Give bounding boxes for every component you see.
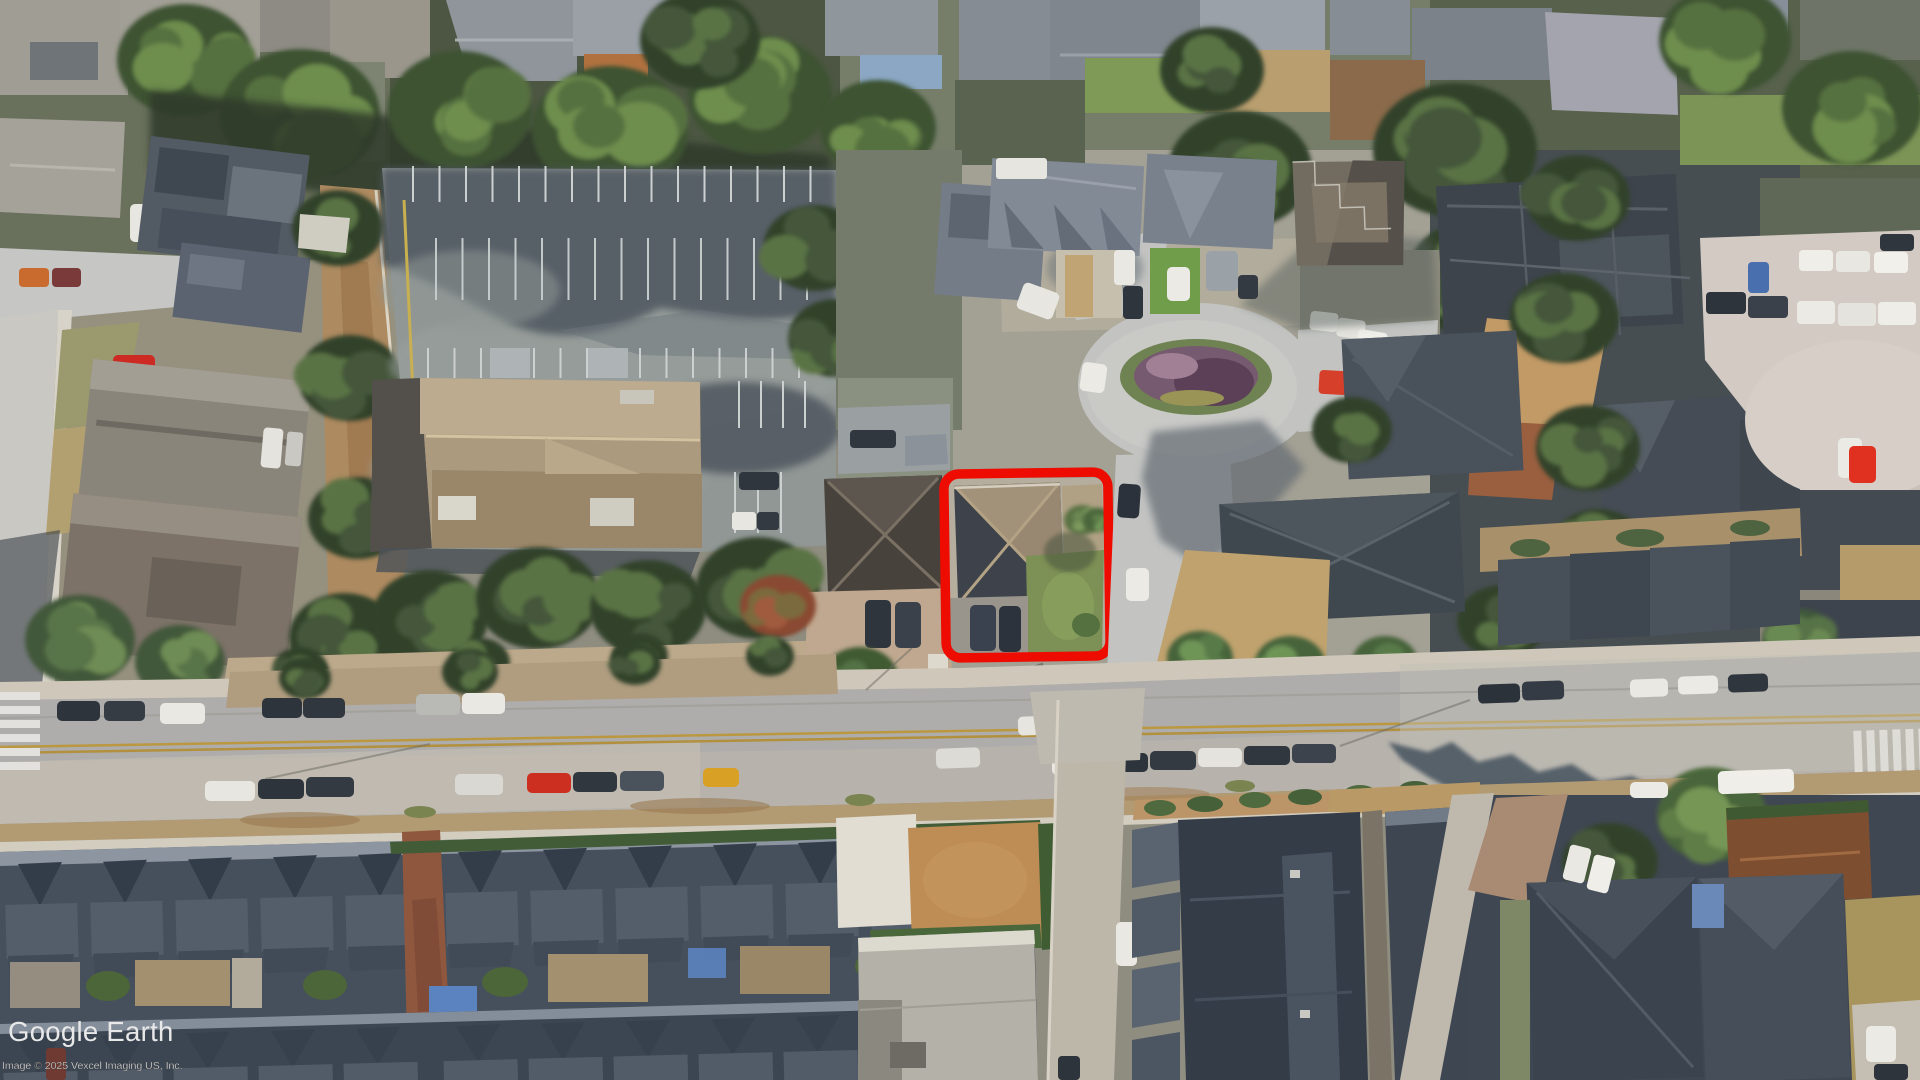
- svg-text:Image © 2025 Vexcel Imaging US: Image © 2025 Vexcel Imaging US, Inc.: [2, 1060, 183, 1072]
- svg-text:Google Earth: Google Earth: [8, 1016, 174, 1047]
